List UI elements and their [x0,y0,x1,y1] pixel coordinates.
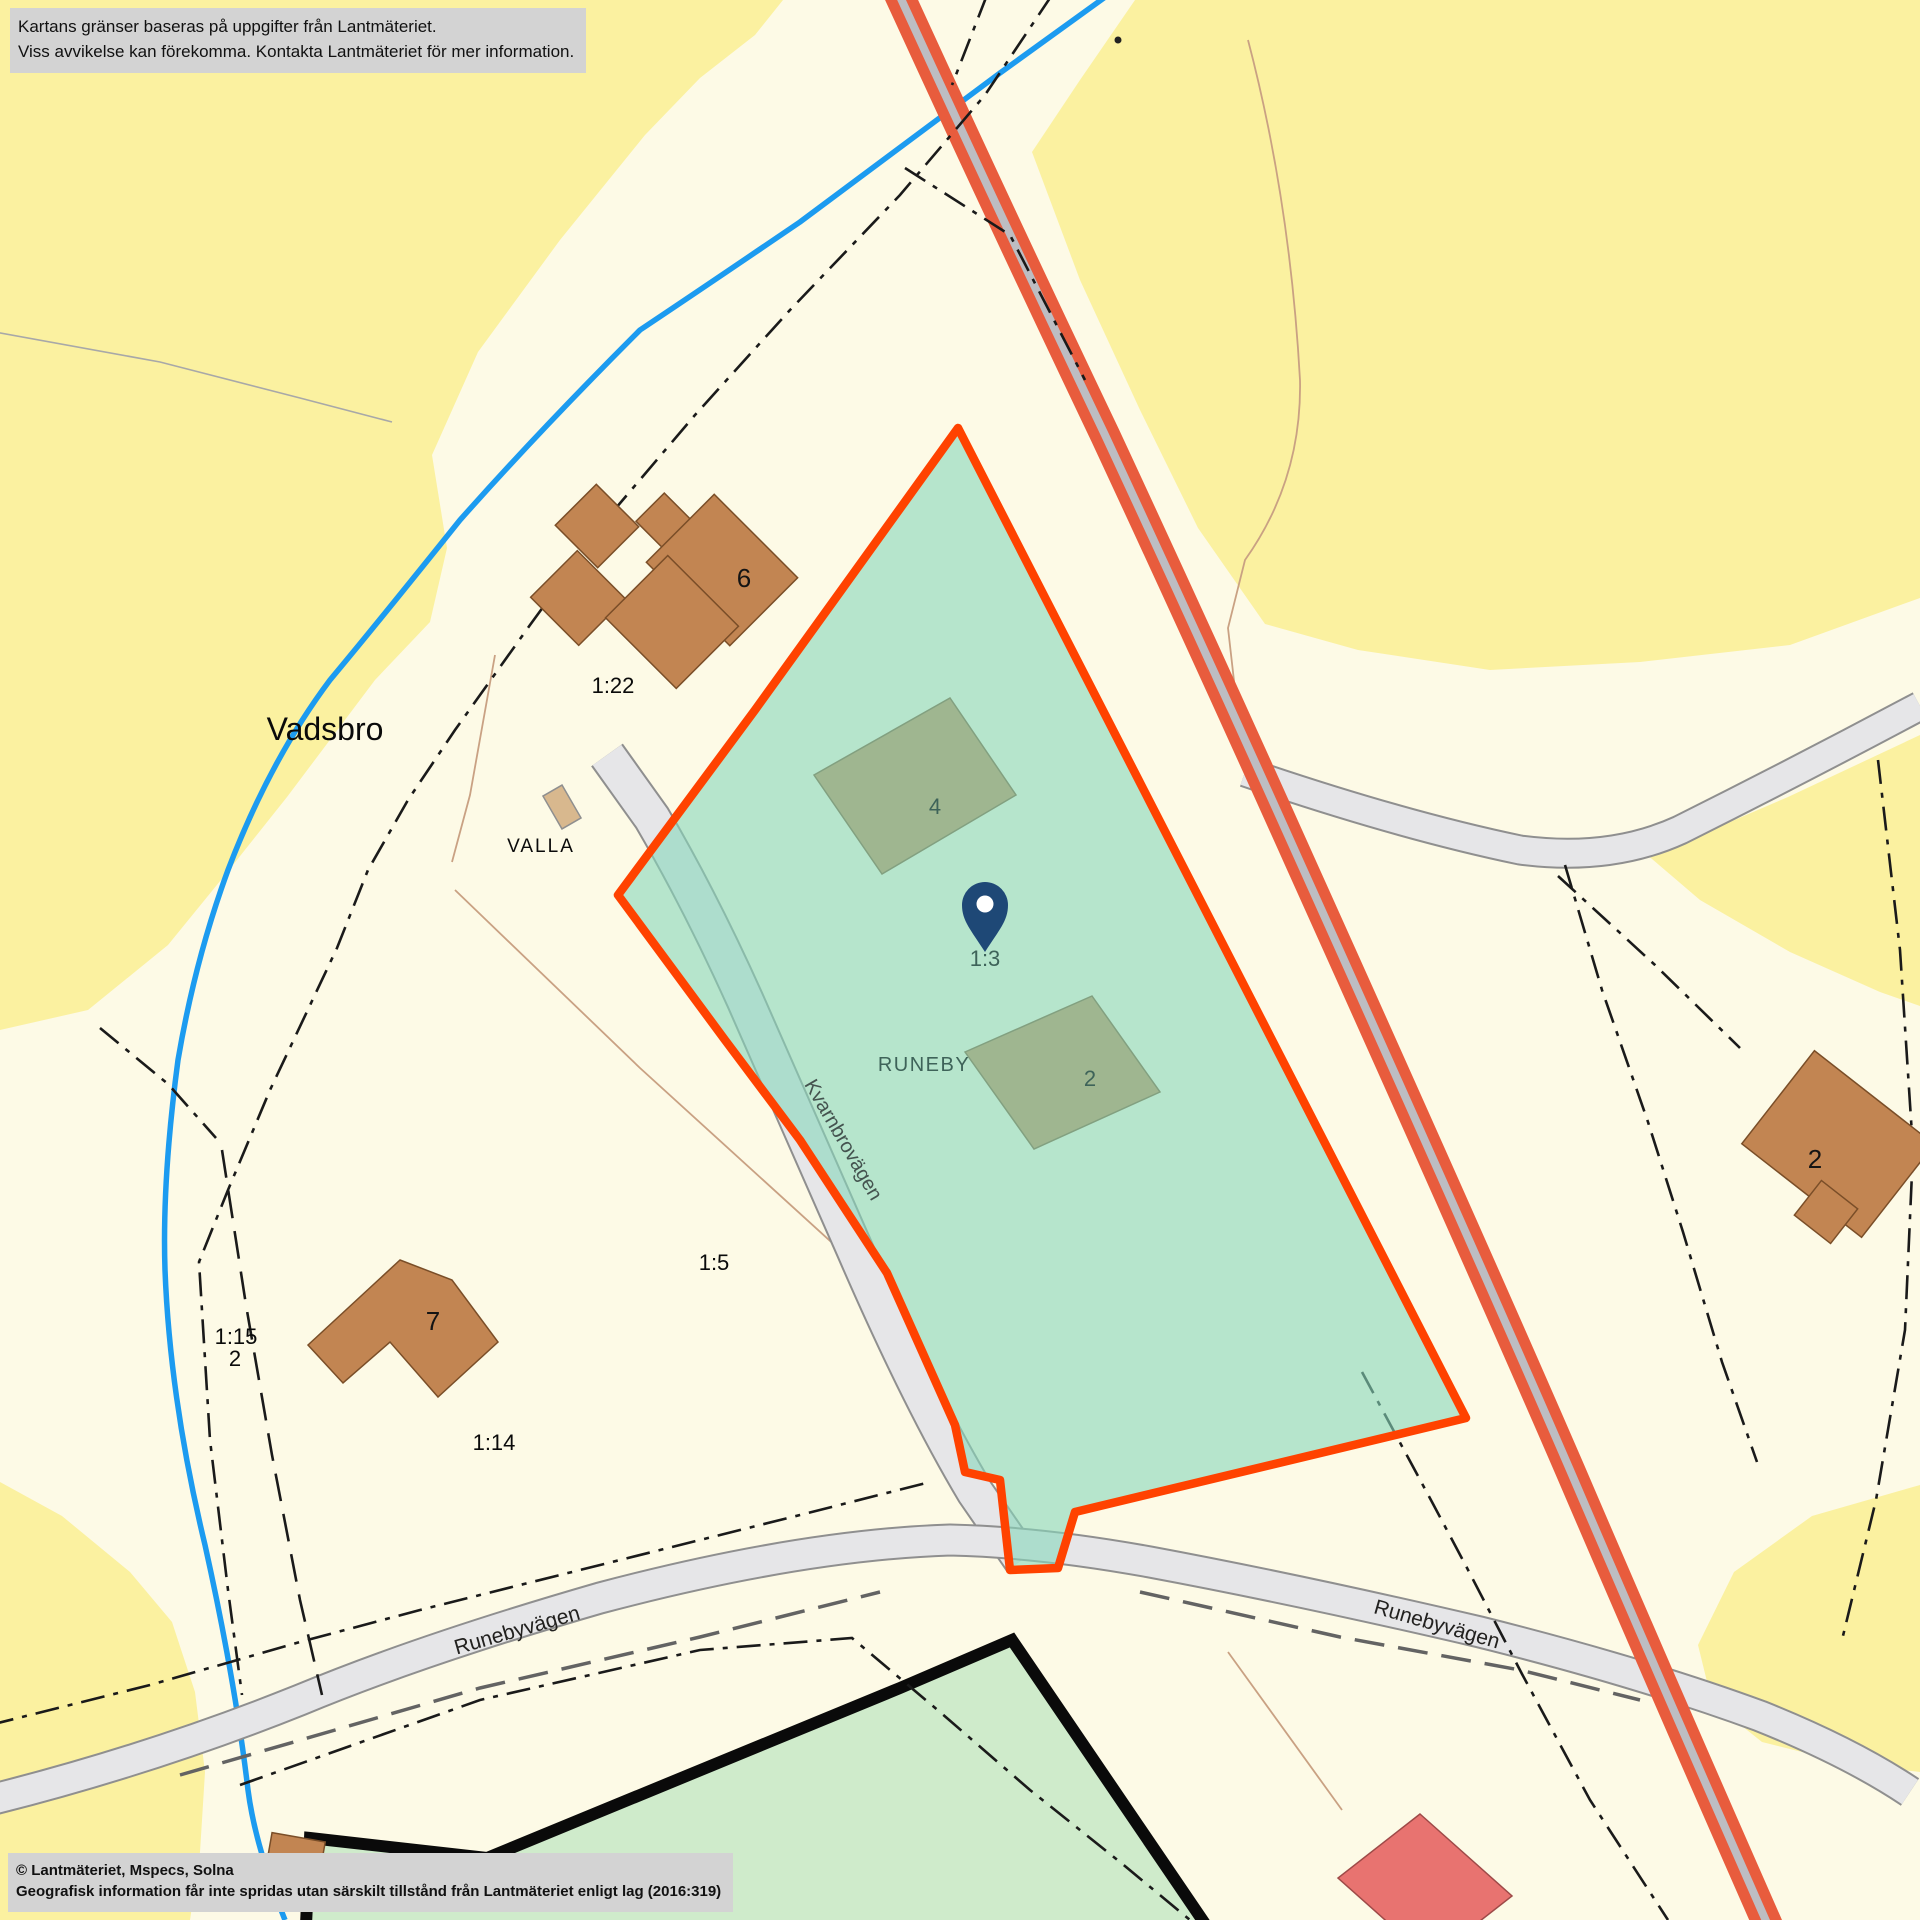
place-label-runeby: RUNEBY [878,1054,970,1076]
map-dot [1115,37,1122,44]
pin-hole [977,896,994,913]
disclaimer-line-2: Viss avvikelse kan förekomma. Kontakta L… [18,40,574,65]
parcel-label-1-5: 1:5 [699,1250,730,1275]
disclaimer-line-1: Kartans gränser baseras på uppgifter frå… [18,15,574,40]
building-label-7: 7 [426,1306,440,1336]
cadastral-map: Vadsbro VALLA RUNEBY 1:22 1:5 1:15 2 1:1… [0,0,1920,1920]
building-label-2-east: 2 [1808,1144,1822,1174]
map-canvas[interactable]: Vadsbro VALLA RUNEBY 1:22 1:5 1:15 2 1:1… [0,0,1920,1920]
attribution-line-2: Geografisk information får inte spridas … [16,1881,721,1902]
building-label-4: 4 [929,794,941,819]
building-label-6: 6 [737,563,751,593]
parcel-label-1-14: 1:14 [473,1430,516,1455]
attribution-line-1: © Lantmäteriet, Mspecs, Solna [16,1860,721,1881]
place-label-valla: VALLA [507,836,575,857]
map-attribution: © Lantmäteriet, Mspecs, Solna Geografisk… [8,1853,733,1912]
building-label-2-inner: 2 [1084,1066,1096,1091]
map-disclaimer: Kartans gränser baseras på uppgifter frå… [10,8,586,73]
parcel-label-1-15-2: 2 [229,1346,241,1371]
place-label-vadsbro: Vadsbro [267,711,384,747]
parcel-label-1-22: 1:22 [592,673,635,698]
